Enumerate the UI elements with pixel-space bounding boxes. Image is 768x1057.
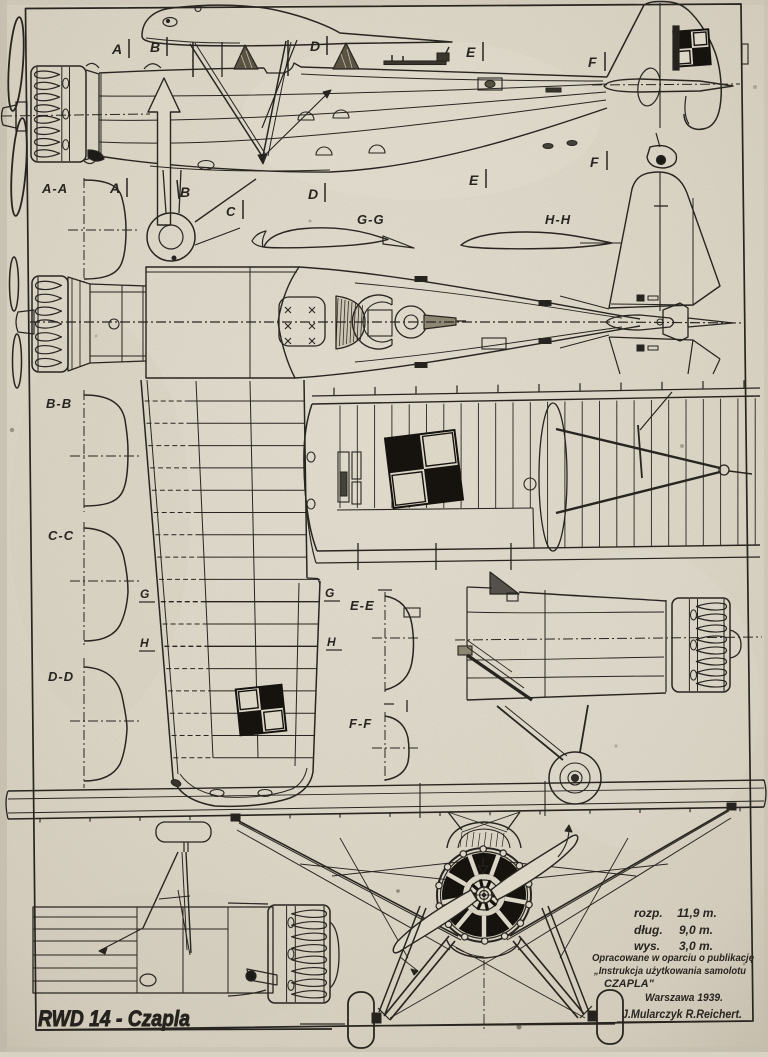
- svg-text:H: H: [327, 635, 336, 649]
- svg-text:H-H: H-H: [545, 212, 571, 227]
- svg-text:A-A: A-A: [41, 181, 68, 196]
- svg-text:E-E: E-E: [350, 598, 375, 613]
- svg-text:H: H: [140, 636, 149, 650]
- svg-text:G: G: [140, 587, 149, 601]
- svg-text:C: C: [226, 204, 236, 219]
- svg-text:D-D: D-D: [48, 669, 74, 684]
- svg-text:RWD 14 - Czapla: RWD 14 - Czapla: [38, 1006, 190, 1031]
- svg-text:wys.: wys.: [634, 939, 660, 953]
- svg-text:Warszawa 1939.: Warszawa 1939.: [645, 992, 723, 1004]
- svg-text:A: A: [111, 41, 122, 57]
- svg-text:Opracowane w oparciu o publika: Opracowane w oparciu o publikację: [592, 952, 754, 964]
- svg-text:B: B: [180, 184, 190, 200]
- svg-text:dług.: dług.: [634, 923, 663, 937]
- svg-text:„Instrukcja użytkowania samolo: „Instrukcja użytkowania samolotu: [593, 965, 746, 977]
- svg-text:F: F: [590, 154, 599, 170]
- svg-text:F: F: [588, 54, 597, 70]
- svg-text:E: E: [469, 172, 479, 188]
- svg-text:B-B: B-B: [46, 396, 72, 411]
- svg-text:C-C: C-C: [48, 528, 74, 543]
- svg-text:D: D: [308, 186, 318, 202]
- svg-text:F-F: F-F: [349, 716, 372, 731]
- svg-text:9,0 m.: 9,0 m.: [679, 923, 713, 937]
- svg-text:G: G: [325, 586, 334, 600]
- svg-text:A: A: [109, 180, 120, 196]
- svg-text:E: E: [466, 44, 476, 60]
- svg-text:CZAPLA": CZAPLA": [604, 978, 655, 990]
- svg-text:D: D: [310, 38, 320, 54]
- svg-text:rozp.: rozp.: [634, 906, 663, 920]
- svg-text:J.Mularczyk R.Reichert.: J.Mularczyk R.Reichert.: [622, 1009, 742, 1021]
- svg-text:G-G: G-G: [357, 212, 385, 227]
- svg-text:3,0 m.: 3,0 m.: [679, 939, 713, 953]
- svg-text:B: B: [150, 39, 160, 55]
- svg-text:11,9 m.: 11,9 m.: [677, 906, 717, 920]
